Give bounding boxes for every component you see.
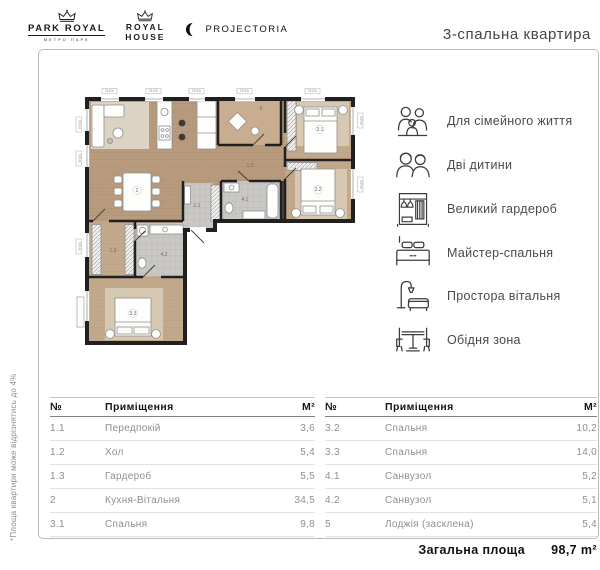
- cell-num: 1.3: [50, 471, 105, 482]
- feature-label: Для сімейного життя: [447, 112, 575, 130]
- feature-label: Обідня зона: [447, 331, 575, 349]
- logo-projectoria-text: PROJECTORIA: [205, 24, 288, 35]
- cell-room: Спальня: [385, 447, 545, 458]
- room-label-bedroom1: 3.1: [317, 127, 324, 133]
- room-label-bath1: 4.1: [242, 197, 249, 203]
- cell-num: 3.2: [325, 423, 385, 434]
- window-marker-label: ПНСК: [360, 180, 364, 189]
- logo-park-royal-text: PARK ROYAL: [28, 23, 105, 36]
- cell-room: Гардероб: [105, 471, 263, 482]
- window-marker-label: ПНСК: [78, 120, 82, 129]
- table-row: 4.2 Санвузол 5,1: [325, 489, 597, 513]
- cell-room: Спальня: [105, 519, 263, 530]
- feature-item: Обідня зона: [394, 321, 592, 359]
- nightstand: [339, 106, 348, 115]
- table-row: 2 Кухня-Вітальня 34,5: [50, 489, 315, 513]
- nightstand: [106, 330, 115, 339]
- table-row: 1.1 Передпокій 3,6: [50, 417, 315, 441]
- header-logos: PARK ROYAL МЕТРО ПАРК ROYAL HOUSE PROJEC…: [28, 9, 288, 43]
- toilet: [138, 258, 146, 268]
- nightstand: [295, 106, 304, 115]
- window-marker-label: ПНСК: [192, 89, 201, 93]
- room-table-right: № Приміщення М² 3.2 Спальня 10,2 3.3 Спа…: [325, 397, 597, 537]
- crescent-icon: [185, 22, 200, 37]
- cell-num: 5: [325, 519, 385, 530]
- total-area: Загальна площа 98,7 m²: [325, 543, 597, 557]
- cell-num: 4.2: [325, 495, 385, 506]
- room-label-bedroom2: 3.2: [315, 187, 322, 193]
- cell-room: Кухня-Вітальня: [105, 495, 263, 506]
- cell-area: 14,0: [545, 447, 597, 458]
- sink: [224, 183, 239, 192]
- closet-shelves: [125, 225, 134, 275]
- room-label-loggia: 5: [260, 106, 263, 112]
- cell-num: 3.3: [325, 447, 385, 458]
- window-ledge: [77, 297, 84, 327]
- col-area: М²: [545, 401, 597, 413]
- family-icon: [394, 101, 432, 141]
- col-num: №: [50, 401, 105, 413]
- page-title: 3-спальна квартира: [443, 26, 591, 43]
- sofa: [92, 105, 104, 147]
- table-row: 3.1 Спальня 9,8: [50, 513, 315, 537]
- cell-area: 5,1: [545, 495, 597, 506]
- logo-royal-house: ROYAL HOUSE: [125, 9, 165, 43]
- cell-num: 1.1: [50, 423, 105, 434]
- feature-item: Для сімейного життя: [394, 101, 592, 141]
- cell-room: Лоджія (засклена): [385, 519, 545, 530]
- feature-label: Дві дитини: [447, 156, 575, 174]
- total-area-value: 98,7 m²: [551, 543, 597, 557]
- cell-area: 5,4: [545, 519, 597, 530]
- crown-icon: [135, 9, 155, 22]
- window-marker-label: ПНСК: [105, 89, 114, 93]
- table-row: 5 Лоджія (засклена) 5,4: [325, 513, 597, 537]
- nightstand: [292, 209, 301, 218]
- plant: [107, 138, 112, 143]
- cell-area: 5,4: [263, 447, 315, 458]
- dining-icon: [394, 321, 432, 359]
- toilet: [225, 203, 233, 213]
- col-room: Приміщення: [385, 401, 545, 413]
- window-marker-label: ПНСК: [240, 89, 249, 93]
- floor-plan: ПНСК ПНСК ПНСК ПНСК ПНСК ПНСК ПНСК ПНСК …: [75, 87, 367, 349]
- cell-num: 2: [50, 495, 105, 506]
- closet-shelves: [92, 225, 101, 275]
- sofa-chaise: [104, 105, 124, 117]
- features-list: Для сімейного життя Дві дитини Великий г…: [394, 101, 592, 365]
- room-label-living: 2: [136, 188, 139, 194]
- nightstand: [336, 209, 345, 218]
- window-marker-label: ПНСК: [78, 154, 82, 163]
- table-row: 1.2 Хол 5,4: [50, 441, 315, 465]
- feature-item: Великий гардероб: [394, 189, 592, 229]
- washer: [137, 225, 148, 236]
- area-disclaimer-note: *Площа квартири може відрізнятись до 4%: [9, 305, 18, 541]
- cell-num: 1.2: [50, 447, 105, 458]
- crown-icon: [56, 9, 78, 22]
- col-num: №: [325, 401, 385, 413]
- feature-label: Майстер-спальня: [447, 244, 575, 262]
- cell-room: Хол: [105, 447, 263, 458]
- logo-projectoria: PROJECTORIA: [185, 22, 288, 37]
- cell-num: 4.1: [325, 471, 385, 482]
- sofa-lamp-icon: [394, 277, 432, 315]
- cell-area: 10,2: [545, 423, 597, 434]
- room-label-bath2: 4.2: [161, 252, 168, 258]
- cell-room: Санвузол: [385, 495, 545, 506]
- bar-stool: [179, 134, 186, 141]
- window-marker-label: ПНСК: [360, 116, 364, 125]
- room-label-bedroom3: 3.3: [130, 311, 137, 317]
- nightstand: [152, 330, 161, 339]
- logo-park-royal: PARK ROYAL МЕТРО ПАРК: [28, 9, 105, 42]
- col-room: Приміщення: [105, 401, 263, 413]
- table-header: № Приміщення М²: [325, 397, 597, 417]
- table-row: 1.3 Гардероб 5,5: [50, 465, 315, 489]
- col-area: М²: [263, 401, 315, 413]
- total-area-label: Загальна площа: [418, 543, 525, 557]
- table-row: 4.1 Санвузол 5,2: [325, 465, 597, 489]
- coffee-table: [113, 128, 123, 138]
- wardrobe-icon: [394, 189, 432, 229]
- bathtub: [267, 184, 278, 218]
- cell-room: Спальня: [385, 423, 545, 434]
- children-icon: [394, 147, 432, 183]
- cell-room: Передпокій: [105, 423, 263, 434]
- cell-area: 9,8: [263, 519, 315, 530]
- side-table: [251, 127, 259, 135]
- kitchen-cabinets: [197, 101, 216, 149]
- feature-item: Дві дитини: [394, 147, 592, 183]
- table-row: 3.2 Спальня 10,2: [325, 417, 597, 441]
- vanity: [243, 211, 265, 219]
- bar-stool: [179, 120, 186, 127]
- window-marker-label: ПНСК: [78, 242, 82, 251]
- room-label-entry: 1.1: [194, 203, 201, 209]
- feature-label: Великий гардероб: [447, 200, 575, 218]
- window-marker-label: ПНСК: [149, 89, 158, 93]
- bath-counter: [150, 225, 183, 234]
- bed-icon: [394, 235, 432, 271]
- room-label-closet: 1.3: [110, 248, 117, 254]
- entry-bench: [185, 186, 191, 204]
- cell-area: 5,2: [545, 471, 597, 482]
- hall-wardrobe: [211, 185, 220, 221]
- cell-area: 34,5: [263, 495, 315, 506]
- table-header: № Приміщення М²: [50, 397, 315, 417]
- cell-room: Санвузол: [385, 471, 545, 482]
- cell-num: 3.1: [50, 519, 105, 530]
- room-label-hall: 1.2: [247, 163, 254, 169]
- feature-item: Простора вітальня: [394, 277, 592, 315]
- room-table-left: № Приміщення М² 1.1 Передпокій 3,6 1.2 Х…: [50, 397, 315, 537]
- logo-park-royal-subtext: МЕТРО ПАРК: [28, 37, 105, 42]
- feature-item: Майстер-спальня: [394, 235, 592, 271]
- cell-area: 3,6: [263, 423, 315, 434]
- table-row: 3.3 Спальня 14,0: [325, 441, 597, 465]
- feature-label: Простора вітальня: [447, 287, 575, 305]
- cell-area: 5,5: [263, 471, 315, 482]
- logo-royal-house-line2: HOUSE: [125, 33, 165, 43]
- window-marker-label: ПНСК: [308, 89, 317, 93]
